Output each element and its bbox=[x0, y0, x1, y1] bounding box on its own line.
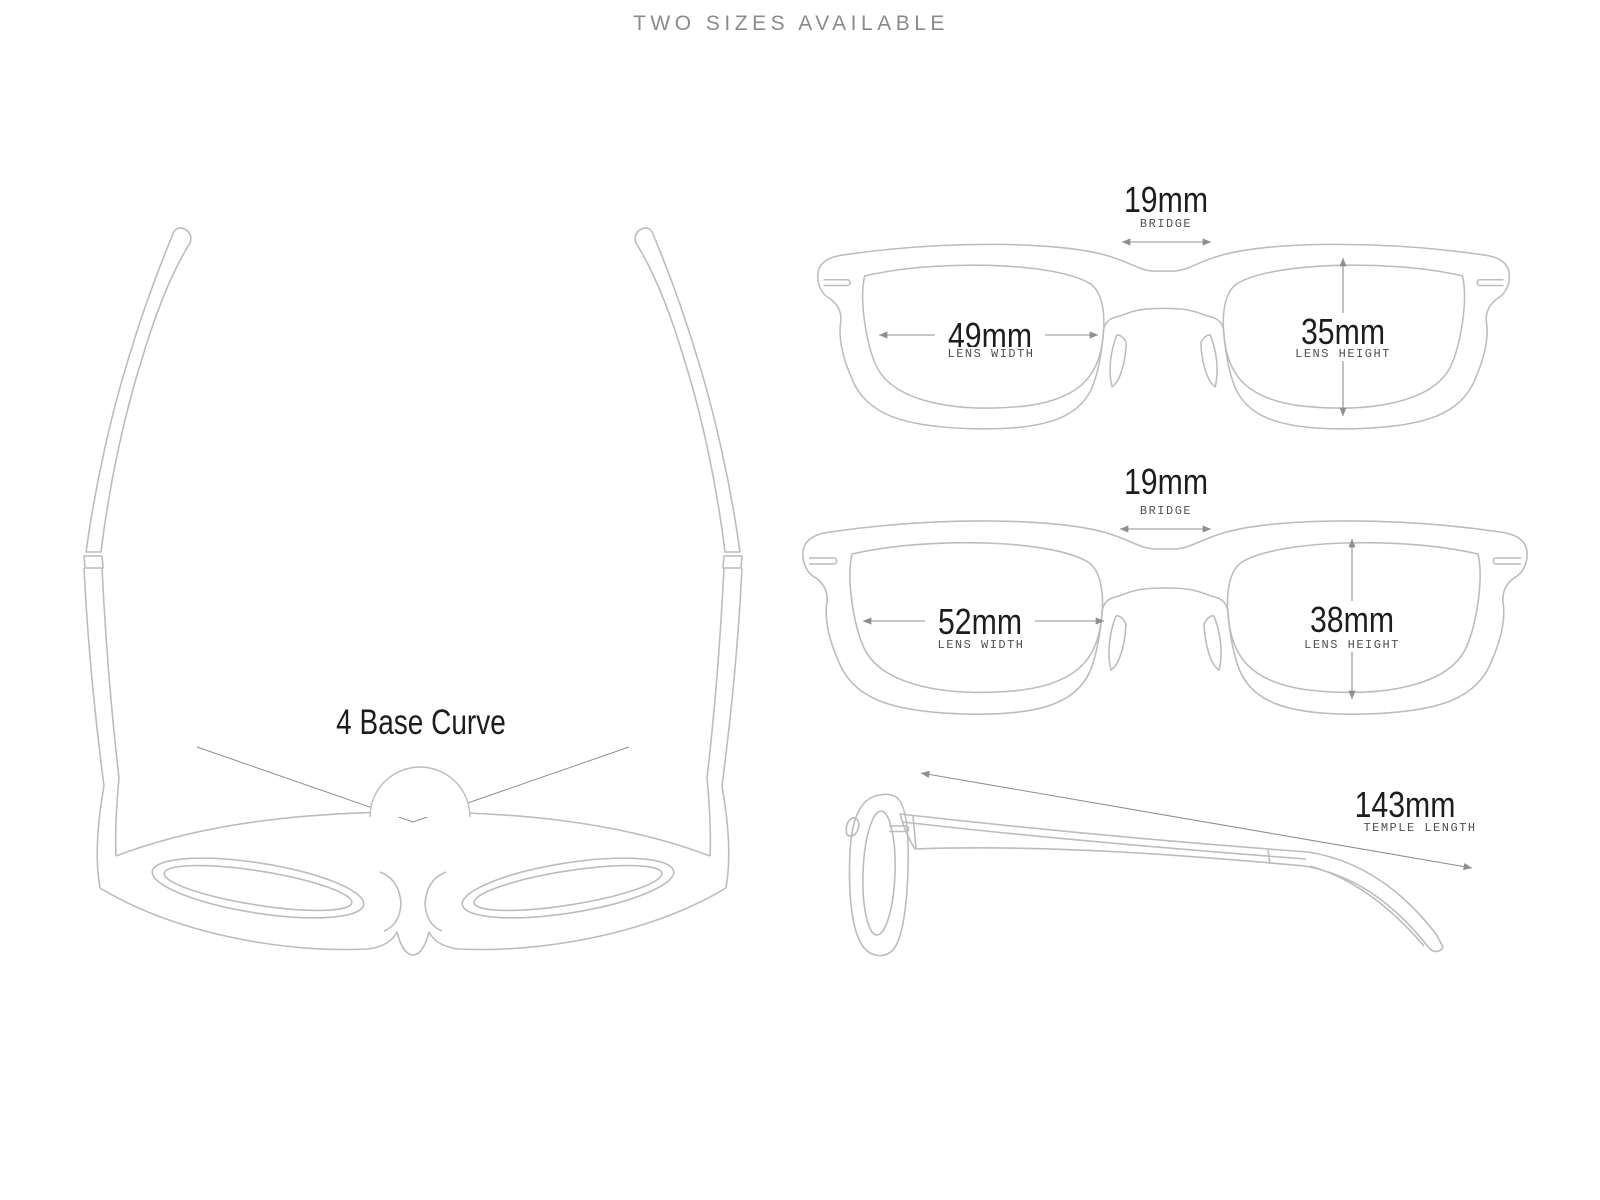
temple-length-value: 143mm bbox=[1340, 786, 1470, 824]
front-view-size-small-drawing bbox=[818, 244, 1510, 429]
lens-height-label-size-large: LENS HEIGHT bbox=[1300, 638, 1404, 652]
bridge-value-size-large: 19mm bbox=[1111, 463, 1221, 501]
diagram-canvas: TWO SIZES AVAILABLE 19mm BRIDGE 49mm LEN… bbox=[0, 0, 1600, 1200]
lens-width-value-size-large: 52mm bbox=[925, 603, 1035, 641]
lens-width-label-size-large: LENS WIDTH bbox=[933, 638, 1028, 652]
temple-length-value-text: 143mm bbox=[1355, 787, 1456, 823]
front-view-size-large-drawing bbox=[803, 521, 1527, 714]
temple-length-label: TEMPLE LENGTH bbox=[1359, 821, 1480, 835]
lens-height-label-size-small: LENS HEIGHT bbox=[1291, 347, 1395, 361]
lens-height-value-size-small: 35mm bbox=[1288, 313, 1398, 351]
lens-width-value-text: 52mm bbox=[938, 604, 1022, 640]
bridge-value-text: 19mm bbox=[1124, 182, 1208, 218]
top-view-drawing bbox=[84, 228, 742, 955]
bridge-value-size-small: 19mm bbox=[1111, 181, 1221, 219]
page-title: TWO SIZES AVAILABLE bbox=[633, 13, 949, 34]
bridge-label-size-small: BRIDGE bbox=[1136, 217, 1196, 231]
lens-height-value-text: 35mm bbox=[1301, 314, 1385, 350]
base-curve-value: 4 Base Curve bbox=[315, 705, 527, 740]
bridge-label-size-large: BRIDGE bbox=[1136, 504, 1196, 518]
lens-height-value-size-large: 38mm bbox=[1297, 601, 1407, 639]
base-curve-text: 4 Base Curve bbox=[336, 705, 506, 740]
bridge-value-text: 19mm bbox=[1124, 464, 1208, 500]
lens-width-label-size-small: LENS WIDTH bbox=[943, 347, 1038, 361]
lens-height-value-text: 38mm bbox=[1310, 602, 1394, 638]
base-curve-annotation bbox=[197, 747, 629, 822]
